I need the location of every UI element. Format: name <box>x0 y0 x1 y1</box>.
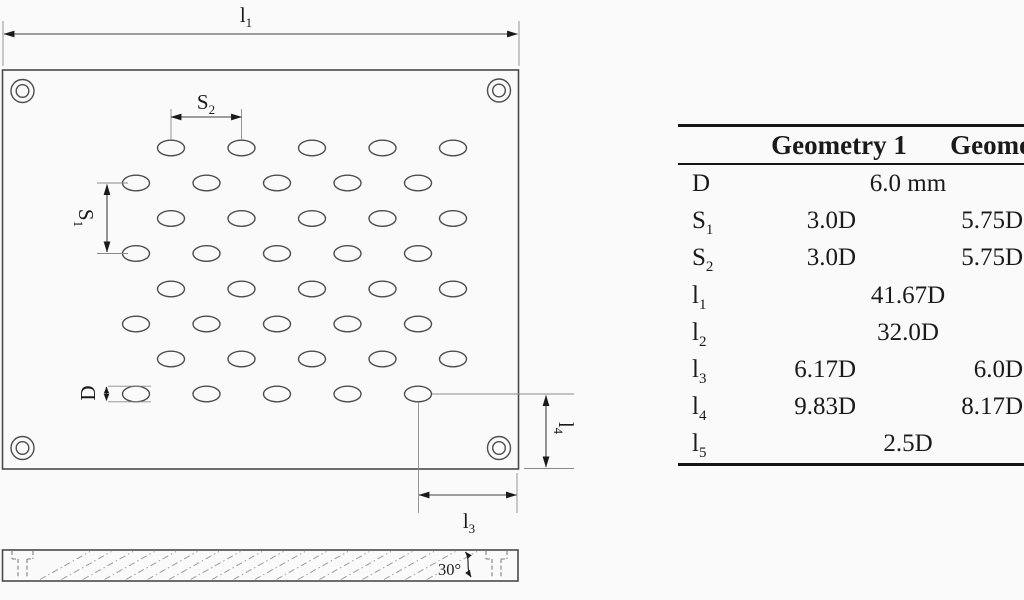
plate-hole <box>299 281 326 297</box>
dim-label-s2: S2 <box>186 90 226 114</box>
plate-hole <box>228 140 255 156</box>
hatch-line <box>255 552 305 580</box>
plate-hole <box>193 246 220 262</box>
plate-hole <box>440 140 467 156</box>
plate-hole <box>158 140 185 156</box>
header-param <box>678 127 750 163</box>
geometry2-value: 5.75D <box>928 239 1024 276</box>
param-label: S2 <box>678 239 750 276</box>
plate-hole <box>334 386 361 402</box>
hatch-line <box>234 552 284 580</box>
counterbore-right <box>486 551 507 578</box>
plate-hole <box>299 211 326 227</box>
hatch-line <box>212 552 262 580</box>
param-label: S1 <box>678 202 750 239</box>
plate-hole <box>405 246 432 262</box>
hatch-line <box>40 552 90 580</box>
plate-hole <box>440 281 467 297</box>
plate-hole <box>440 211 467 227</box>
header-geometry1: Geometry 1 <box>750 127 928 163</box>
plate-hole <box>369 211 396 227</box>
plate-hole <box>193 386 220 402</box>
param-label: l5 <box>678 425 750 462</box>
plate-hole <box>334 316 361 332</box>
plate-hole <box>440 351 467 367</box>
plate-hole <box>158 211 185 227</box>
section-hatching <box>40 552 477 580</box>
counterbore-left <box>12 551 33 578</box>
plate-hole <box>228 211 255 227</box>
dim-label-l1: l1 <box>226 3 266 27</box>
table-row-l4: l4 9.83D 8.17D <box>678 388 1024 425</box>
hatch-line <box>62 552 112 580</box>
plate-hole <box>123 386 150 402</box>
shared-value: 41.67D <box>750 277 1024 314</box>
geometry1-value: 3.0D <box>750 202 928 239</box>
hatch-line <box>320 552 370 580</box>
plate-hole <box>264 175 291 191</box>
dimension-lines <box>4 34 546 495</box>
plate-top-view <box>3 70 519 469</box>
plate-hole <box>405 175 432 191</box>
hatch-line <box>298 552 348 580</box>
plate-hole <box>405 386 432 402</box>
plate-hole <box>264 386 291 402</box>
table-row-l3: l3 6.17D 6.0D <box>678 351 1024 388</box>
header-geometry2: Geometry 2 <box>928 127 1024 163</box>
figure: l1 S2 S1 D l4 l3 30° Geometry 1 Geometry… <box>0 0 1024 600</box>
plate-hole <box>123 316 150 332</box>
plate-drawing <box>0 0 600 600</box>
shared-value: 6.0 mm <box>750 165 1024 202</box>
table-row-S2: S2 3.0D 5.75D <box>678 239 1024 276</box>
hatch-line <box>148 552 198 580</box>
plate-hole <box>299 140 326 156</box>
plate-hole <box>299 351 326 367</box>
table-header-row: Geometry 1 Geometry 2 <box>678 127 1024 165</box>
table-row-l2: l2 32.0D <box>678 314 1024 351</box>
param-label: l1 <box>678 277 750 314</box>
plate-hole <box>228 351 255 367</box>
hatch-line <box>83 552 133 580</box>
table-row-l5: l5 2.5D <box>678 425 1024 462</box>
plate-hole <box>405 316 432 332</box>
plate-hole <box>158 351 185 367</box>
hatch-line <box>363 552 413 580</box>
geometry1-value: 9.83D <box>750 388 928 425</box>
plate-hole <box>334 246 361 262</box>
plate-hole <box>193 316 220 332</box>
plate-hole <box>369 140 396 156</box>
hatch-line <box>105 552 155 580</box>
param-label: D <box>678 165 750 202</box>
plate-hole <box>193 175 220 191</box>
param-label: l3 <box>678 351 750 388</box>
hatch-angle-label: 30° <box>437 561 462 579</box>
hatch-angle-arrow <box>466 552 472 577</box>
dim-label-d: D <box>76 378 100 408</box>
dim-label-l3: l3 <box>449 509 489 533</box>
plate-hole <box>334 175 361 191</box>
table-row-S1: S1 3.0D 5.75D <box>678 202 1024 239</box>
hatch-line <box>277 552 327 580</box>
table-row-l1: l1 41.67D <box>678 277 1024 314</box>
plate-hole <box>264 246 291 262</box>
plate-hole <box>369 351 396 367</box>
dim-label-l4: l4 <box>554 413 578 443</box>
geometry2-value: 5.75D <box>928 202 1024 239</box>
plate-hole <box>369 281 396 297</box>
hatch-line <box>384 552 434 580</box>
hatch-line <box>126 552 176 580</box>
shared-value: 2.5D <box>750 425 1024 462</box>
param-label: l2 <box>678 314 750 351</box>
plate-hole <box>228 281 255 297</box>
plate-hole <box>264 316 291 332</box>
plate-hole <box>158 281 185 297</box>
hole-grid <box>123 140 467 402</box>
param-label: l4 <box>678 388 750 425</box>
dim-label-s1: S1 <box>74 203 98 233</box>
geometry2-value: 6.0D <box>928 351 1024 388</box>
hatch-line <box>191 552 241 580</box>
geometry-table: Geometry 1 Geometry 2 D 6.0 mm S1 3.0D 5… <box>678 124 1024 466</box>
geometry1-value: 3.0D <box>750 239 928 276</box>
geometry2-value: 8.17D <box>928 388 1024 425</box>
hatch-line <box>169 552 219 580</box>
geometry1-value: 6.17D <box>750 351 928 388</box>
hatch-line <box>341 552 391 580</box>
table-row-D: D 6.0 mm <box>678 165 1024 202</box>
shared-value: 32.0D <box>750 314 1024 351</box>
